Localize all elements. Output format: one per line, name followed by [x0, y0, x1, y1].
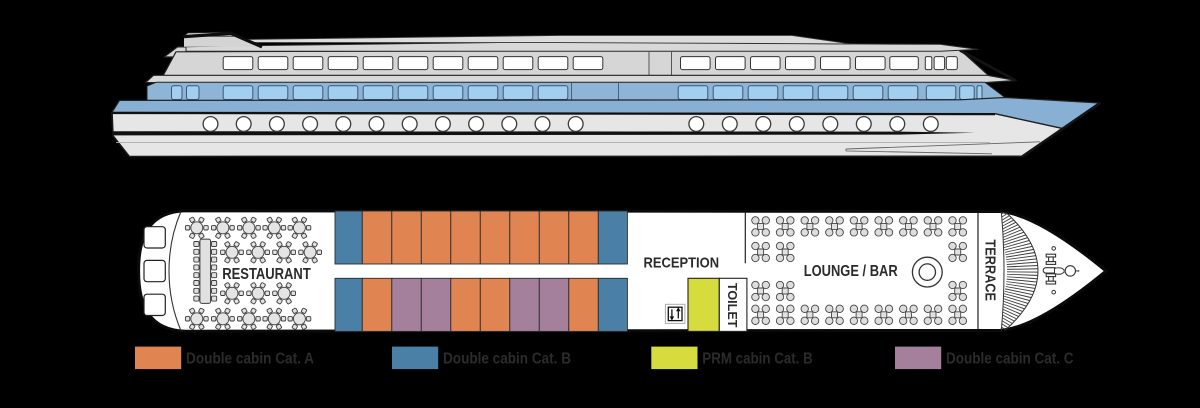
svg-text:TERRACE: TERRACE [982, 240, 999, 302]
svg-text:PRM cabin Cat. B: PRM cabin Cat. B [702, 350, 813, 367]
svg-text:Double cabin Cat. B: Double cabin Cat. B [443, 350, 571, 367]
svg-text:Double cabin Cat. C: Double cabin Cat. C [946, 350, 1074, 367]
svg-text:RESTAURANT: RESTAURANT [222, 266, 311, 283]
svg-text:Double cabin Cat. A: Double cabin Cat. A [186, 350, 314, 367]
svg-text:RECEPTION: RECEPTION [644, 254, 720, 271]
svg-text:TOILET: TOILET [725, 283, 740, 328]
svg-text:LOUNGE / BAR: LOUNGE / BAR [804, 263, 898, 280]
